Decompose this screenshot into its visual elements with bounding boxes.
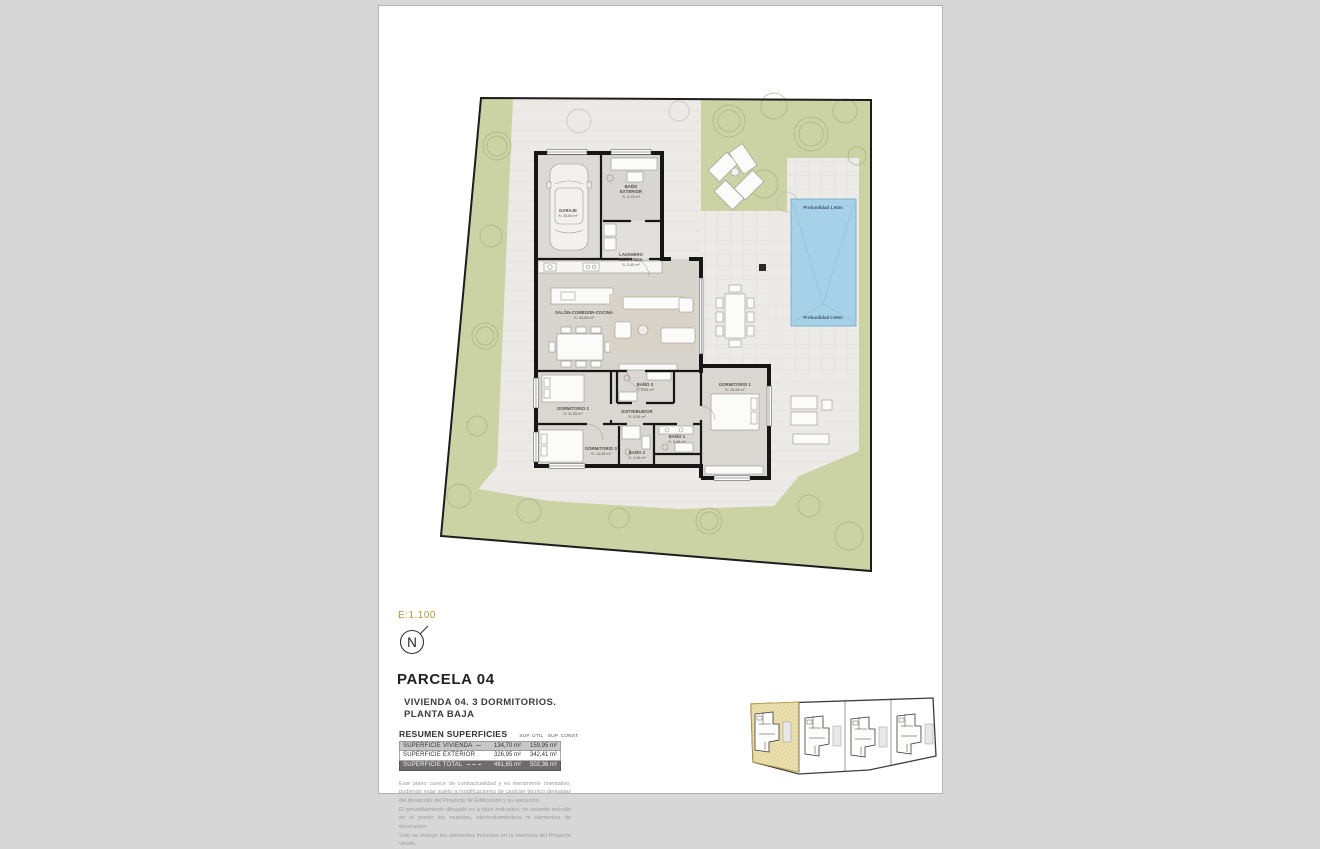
svg-text:S: 15,08 m²: S: 15,08 m² — [725, 388, 745, 392]
viewer-background: { "plan": { "pool": { "depth_top": "Prof… — [0, 0, 1320, 800]
subtitle-line1: VIVIENDA 04. 3 DORMITORIOS. — [404, 697, 583, 709]
north-letter: N — [407, 635, 417, 650]
svg-text:DESPENSA: DESPENSA — [619, 257, 643, 262]
label-bano3: BAÑO 3 — [637, 382, 654, 387]
disclaimer-text: Este plano carece de contractualidad y e… — [399, 780, 571, 849]
svg-text:S: 5,06 m²: S: 5,06 m² — [628, 415, 646, 419]
svg-text:S: 11,05 m²: S: 11,05 m² — [563, 412, 583, 416]
label-dormitorio3: DORMITORIO 3 — [585, 446, 617, 451]
label-garaje: GARAJE — [559, 208, 577, 213]
scale-label: E:1.100 — [398, 610, 583, 621]
plan-sheet: Profundidad 1.60m Profundidad 0.90m — [378, 5, 943, 794]
floor-plan: Profundidad 1.60m Profundidad 0.90m — [379, 6, 944, 606]
label-bano1: BAÑO 1 — [669, 434, 686, 439]
title-block: E:1.100 N PARCELA 04 VIVIENDA 04. 3 DORM… — [397, 610, 583, 849]
bed-dorm3 — [539, 430, 583, 462]
leader-dashes — [476, 744, 481, 746]
surface-summary-table: RESUMEN SUPERFICIES SUP. ÚTIL SUP. CONST… — [399, 729, 561, 771]
swimming-pool: Profundidad 1.60m Profundidad 0.90m — [791, 199, 856, 326]
site-plan-inset — [739, 690, 939, 785]
col-header-const: SUP. CONST. — [543, 734, 579, 739]
table-row-total: SUPERFICIE TOTAL 461,65 m² 502,36 m² — [399, 761, 561, 771]
svg-text:EXTERIOR: EXTERIOR — [620, 189, 642, 194]
leader-dashes — [467, 763, 481, 765]
svg-text:S: 28,54 m²: S: 28,54 m² — [558, 214, 578, 218]
svg-text:S: 5,05 m²: S: 5,05 m² — [636, 388, 654, 392]
pool-depth-top-label: Profundidad 1.60m — [803, 205, 843, 210]
svg-text:S: 44,55 m²: S: 44,55 m² — [574, 316, 594, 320]
svg-text:S: 4,15 m²: S: 4,15 m² — [628, 456, 646, 460]
table-row-vivienda: SUPERFICIE VIVIENDA 134,70 m² 159,95 m² — [399, 741, 561, 751]
bed-dorm2 — [542, 375, 584, 402]
subtitle-line2: PLANTA BAJA — [404, 709, 583, 721]
svg-text:S: 14,05 m²: S: 14,05 m² — [591, 452, 611, 456]
label-distribuidor: DISTRIBUIDOR — [621, 409, 652, 414]
label-dormitorio2: DORMITORIO 2 — [557, 406, 589, 411]
parcel-title: PARCELA 04 — [397, 671, 583, 688]
svg-text:S: 5,48 m²: S: 5,48 m² — [668, 440, 686, 444]
label-salon: SALÓN-COMEDOR-COCINA — [555, 310, 613, 315]
col-header-util: SUP. ÚTIL — [507, 734, 543, 739]
north-arrow-icon: N — [397, 624, 431, 658]
svg-text:S: 4,13 m²: S: 4,13 m² — [622, 195, 640, 199]
label-bano2: BAÑO 2 — [629, 450, 646, 455]
svg-text:S: 3,45 m²: S: 3,45 m² — [622, 263, 640, 267]
pool-depth-bottom-label: Profundidad 0.90m — [803, 315, 843, 320]
table-row-exterior: SUPERFICIE EXTERIOR 326,95 m² 342,41 m² — [399, 751, 561, 761]
car — [547, 164, 591, 250]
label-dormitorio1: DORMITORIO 1 — [719, 382, 751, 387]
table-title: RESUMEN SUPERFICIES — [399, 729, 507, 739]
